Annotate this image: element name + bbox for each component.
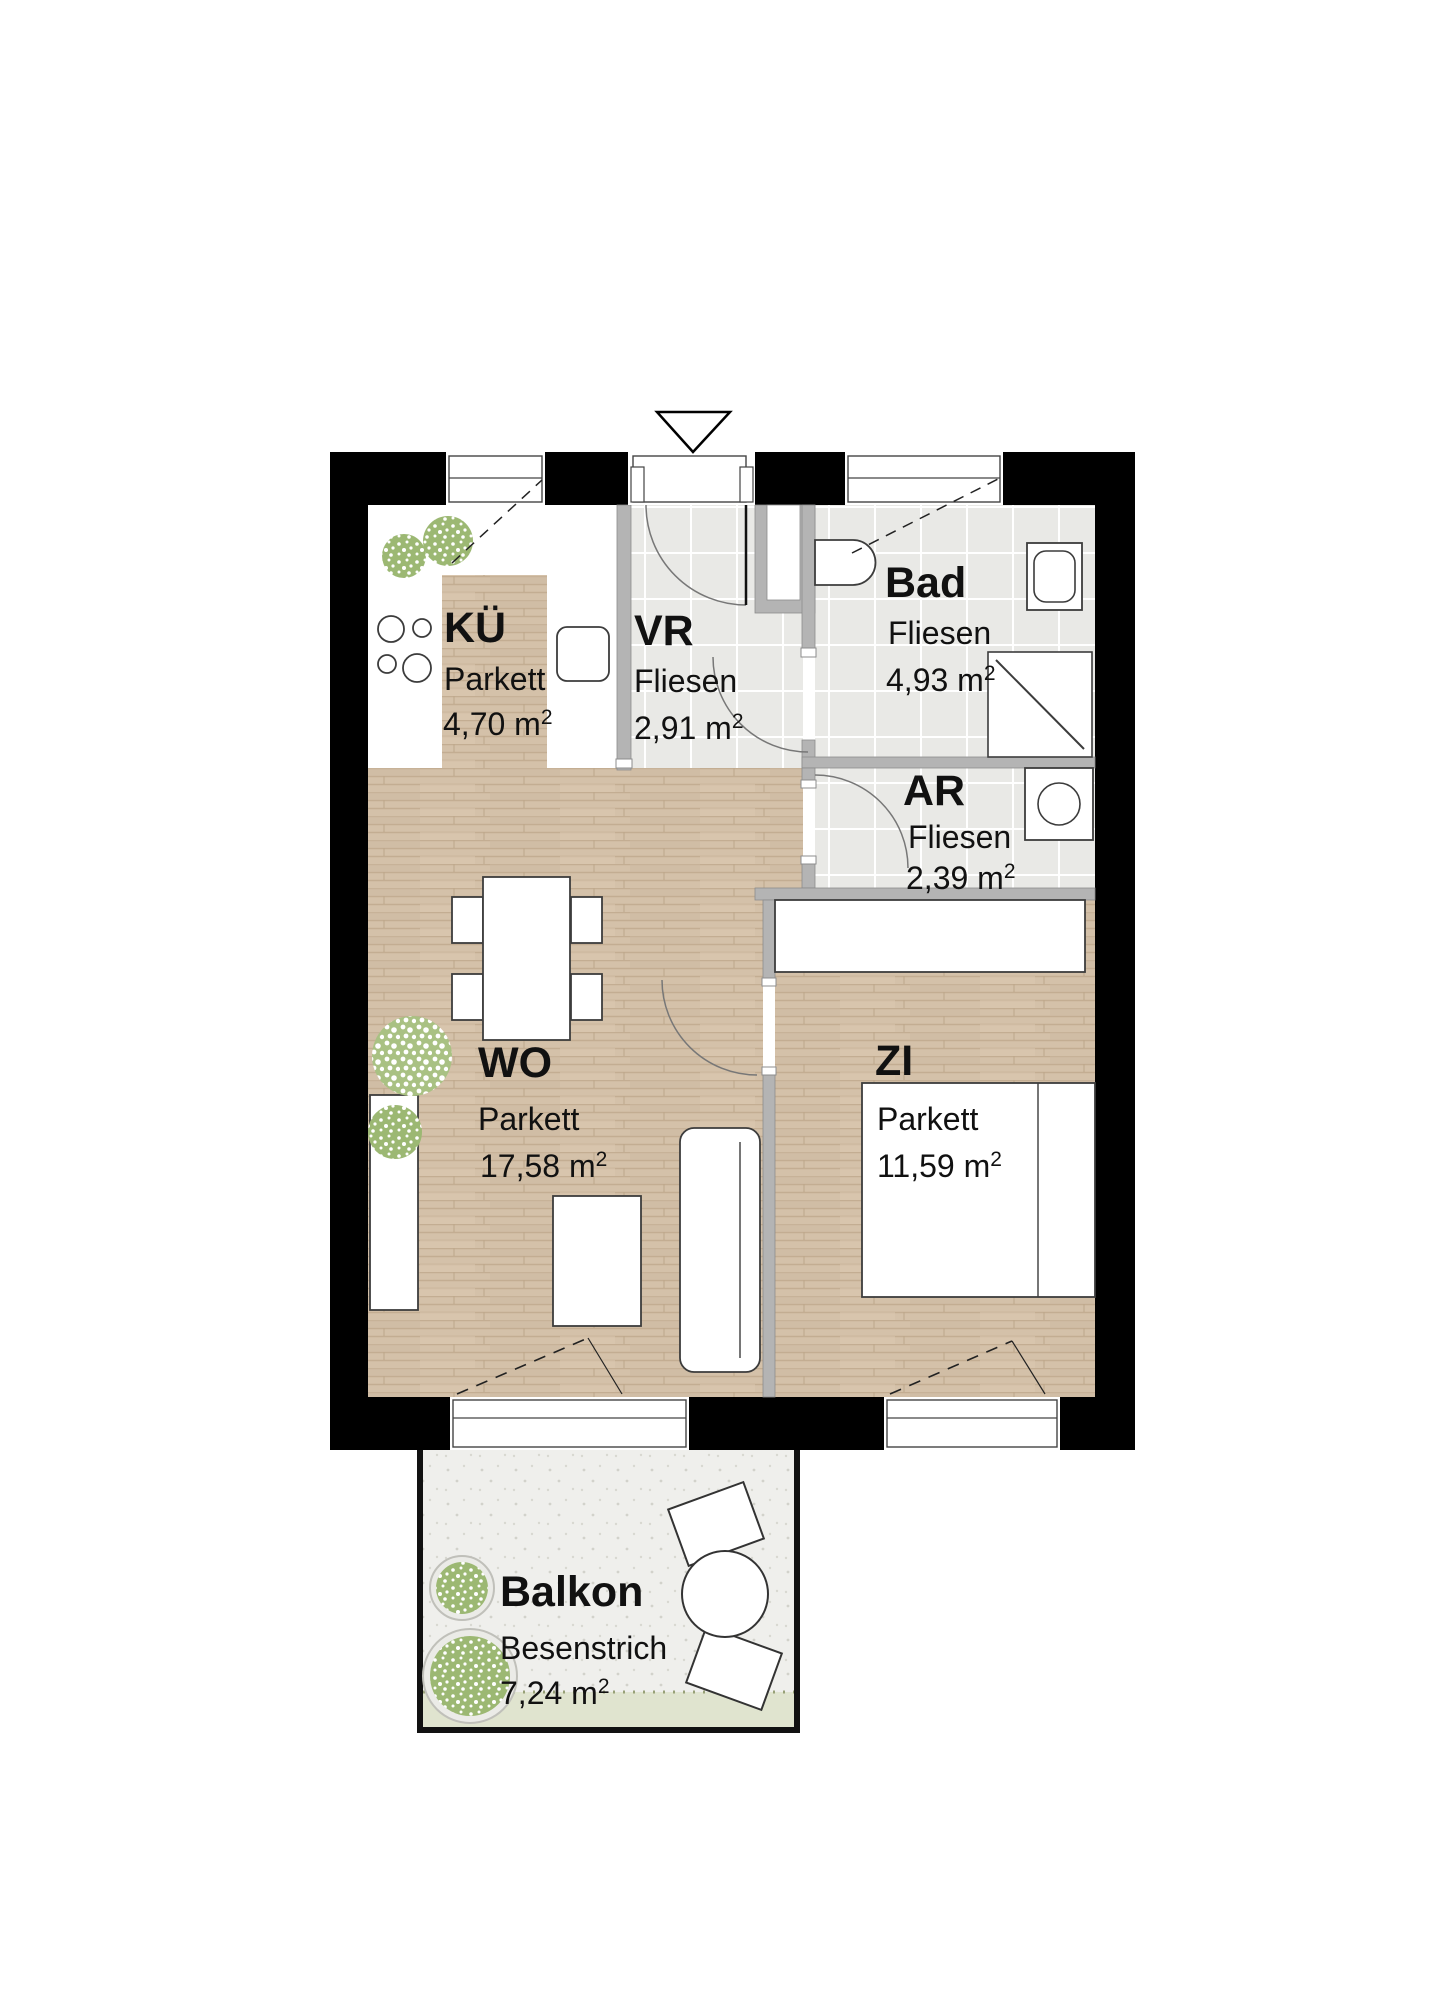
toilet-icon (815, 540, 876, 585)
corridor-parquet-floor (763, 768, 803, 888)
room-floor-ar: Fliesen (908, 819, 1011, 855)
washbasin-icon (1027, 543, 1082, 610)
sink-icon (557, 627, 609, 681)
washing-machine-icon (1025, 768, 1093, 840)
room-floor-bad: Fliesen (888, 615, 991, 651)
room-area-balkon: 7,24 m2 (500, 1675, 610, 1711)
burner (378, 655, 396, 673)
plant-icon (430, 1636, 510, 1716)
wall-hall-bath (802, 505, 815, 650)
area-sup: 2 (541, 706, 553, 729)
area-sup: 2 (732, 710, 744, 733)
area-value: 2,91 m (634, 710, 732, 746)
wardrobe (775, 900, 1085, 972)
room-area-wo: 17,58 m2 (480, 1148, 607, 1184)
room-floor-wo: Parkett (478, 1101, 579, 1137)
room-label-wo: WO (478, 1039, 552, 1087)
area-value: 7,24 m (500, 1675, 598, 1711)
room-area-bad: 4,93 m2 (886, 662, 996, 698)
entrance-jamb (740, 467, 753, 502)
bedroom-window-frame (887, 1400, 1057, 1447)
balcony-door-frame (453, 1400, 686, 1447)
room-label-balkon: Balkon (500, 1568, 643, 1616)
room-floor-kue: Parkett (444, 661, 545, 697)
dining-table (483, 877, 570, 1040)
chair (452, 974, 483, 1020)
plant-icon (368, 1105, 422, 1159)
floorplan-drawing: KÜ Parkett 4,70 m2 VR Fliesen 2,91 m2 Ba… (0, 0, 1452, 2000)
room-area-vr: 2,91 m2 (634, 710, 744, 746)
room-floor-balkon: Besenstrich (500, 1630, 667, 1666)
area-value: 4,93 m (886, 662, 984, 698)
burner (413, 619, 431, 637)
shaft-opening (767, 505, 800, 600)
plant-icon (423, 516, 473, 566)
kitchen-window-frame (449, 456, 542, 502)
door-jamb (762, 978, 776, 986)
area-value: 4,70 m (443, 706, 541, 742)
room-area-ar: 2,39 m2 (906, 860, 1016, 896)
area-sup: 2 (984, 662, 996, 685)
room-label-kue: KÜ (444, 604, 506, 652)
room-label-bad: Bad (885, 559, 966, 607)
room-area-kue: 4,70 m2 (443, 706, 553, 742)
chair (571, 974, 602, 1020)
area-sup: 2 (598, 1675, 610, 1698)
door-jamb (801, 856, 816, 864)
area-sup: 2 (1004, 860, 1016, 883)
coffee-table (553, 1196, 641, 1326)
balcony-wall-bottom (417, 1727, 800, 1733)
chair (452, 897, 483, 943)
entrance-jamb (631, 467, 644, 502)
floorplan-page: KÜ Parkett 4,70 m2 VR Fliesen 2,91 m2 Ba… (0, 0, 1452, 2000)
balcony-wall-right (794, 1450, 800, 1733)
wall-living-bedroom-top (763, 900, 775, 980)
room-label-zi: ZI (875, 1037, 913, 1085)
burner (378, 616, 404, 642)
area-value: 17,58 m (480, 1148, 596, 1184)
wall-living-bedroom-bottom (763, 1075, 775, 1397)
plant-icon (382, 534, 426, 578)
room-floor-vr: Fliesen (634, 663, 737, 699)
door-jamb (801, 780, 816, 788)
room-label-vr: VR (634, 607, 694, 655)
wall-cap (616, 759, 632, 768)
area-value: 11,59 m (877, 1148, 990, 1184)
balcony-table (682, 1551, 768, 1637)
plant-icon (436, 1562, 488, 1614)
area-sup: 2 (990, 1148, 1002, 1171)
wall-cap (801, 648, 816, 657)
room-label-ar: AR (903, 767, 965, 815)
bath-window-frame (848, 456, 1000, 502)
burner (403, 654, 431, 682)
wall-kitchen-hall (617, 505, 631, 770)
door-jamb (762, 1067, 776, 1075)
entrance-frame (633, 456, 746, 502)
room-floor-zi: Parkett (877, 1101, 978, 1137)
storage-fixtures (1025, 768, 1093, 840)
area-value: 2,39 m (906, 860, 1004, 896)
room-area-zi: 11,59 m2 (877, 1148, 1002, 1184)
plant-icon (372, 1016, 452, 1096)
area-sup: 2 (596, 1148, 608, 1171)
sofa (680, 1128, 760, 1372)
chair (571, 897, 602, 943)
wall-storage-left-bottom (802, 864, 815, 888)
balcony-wall-left (417, 1450, 423, 1733)
